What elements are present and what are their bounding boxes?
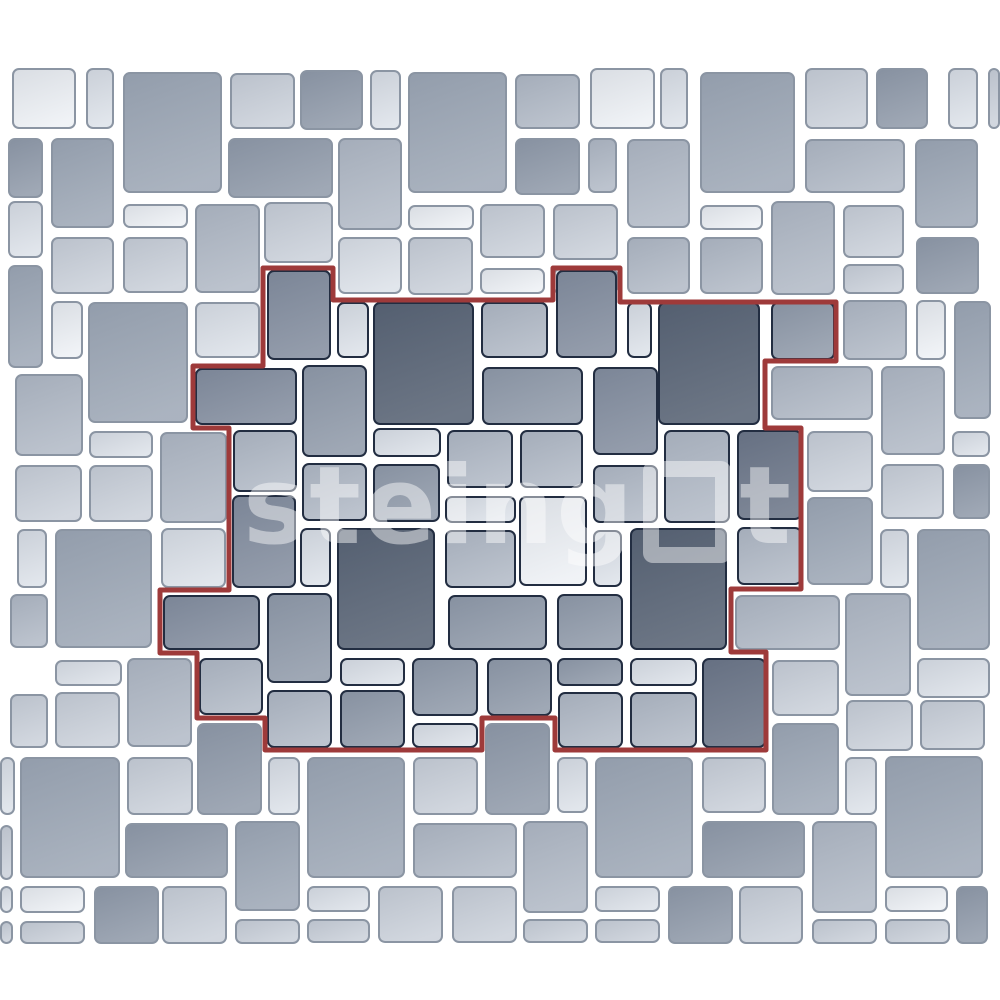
paving-tile [739,886,803,944]
paving-tile [338,138,402,230]
paving-tile [0,825,13,880]
paving-tile [51,301,83,359]
paving-tile [846,700,913,751]
paving-tile [956,886,988,944]
paving-tile [267,690,332,748]
paving-tile [162,886,227,944]
paving-tile [197,723,262,815]
paving-tile [700,237,763,294]
paving-tile [267,270,331,360]
paving-tile [556,270,617,358]
paving-tile [481,302,548,358]
paving-tile [123,204,188,228]
paving-tile [805,139,905,193]
paving-tile [807,431,873,492]
paving-tile [480,268,545,294]
paving-tile [885,919,950,944]
paving-tile [51,237,114,294]
paving-tile [195,368,297,425]
paving-tile [267,593,332,683]
paving-tile [881,464,944,519]
paving-tile [230,73,295,129]
paving-tile [805,68,868,129]
paving-tile [557,757,588,813]
paving-tile [15,374,83,456]
paving-tile [557,594,623,650]
paving-tile [482,367,583,425]
paving-tile [51,138,114,228]
paving-tile [988,68,1000,129]
paving-tile [15,465,82,522]
paving-tile [917,529,990,650]
paving-tile [88,302,188,423]
paving-tile [843,205,904,258]
paving-tile [10,594,48,648]
paving-tile [772,660,839,716]
paving-tile [127,757,193,815]
paving-tile [307,919,370,943]
paving-tile [916,300,946,360]
paving-tile [412,723,478,748]
paving-tile [595,886,660,912]
paving-tile [195,302,260,358]
paving-tile [702,821,805,878]
paving-tile [408,205,474,230]
paving-tile [771,366,873,420]
paving-tile [916,237,979,294]
paving-tile [700,72,795,193]
paving-tile [771,302,835,360]
paving-tile [954,301,991,419]
paving-tile [127,658,192,747]
paving-tile [702,658,766,748]
paving-tile [123,237,188,293]
paving-tile [408,237,473,295]
paving-tile [885,756,983,878]
paving-tile [876,68,928,129]
paving-tile [8,265,43,368]
paving-tile [89,431,153,458]
paving-tile [300,70,363,130]
paving-tile [94,886,159,944]
paving-tile [735,595,840,650]
paving-tile [812,919,877,944]
paving-tile [627,302,652,358]
paving-tile [55,529,152,648]
paving-tile [668,886,733,944]
paving-tile [702,757,766,813]
steingot-watermark: steingt [243,441,793,571]
paving-tile [952,431,990,457]
paving-tile [235,919,300,944]
paving-tile [448,595,547,650]
paving-tile [452,886,517,943]
paving-tile [8,201,43,258]
paving-tile [880,529,909,588]
paving-tile [20,886,85,913]
paving-tile [55,692,120,748]
paving-tile [160,432,227,523]
paving-tile [595,757,693,878]
paving-tile [523,821,588,913]
paving-tile [917,658,990,698]
paving-tile [0,886,13,913]
paving-tile [480,204,545,258]
paving-tile [340,690,405,748]
paving-tile [86,68,114,129]
paving-tile [845,593,911,696]
paving-tile [515,138,580,195]
paving-tile [558,692,623,748]
paving-tile [10,694,48,748]
paving-tile [630,658,697,686]
paving-tile [915,139,978,228]
paving-tile [557,658,623,686]
paving-tile [199,658,263,715]
paving-tile [630,692,697,748]
paving-tile [812,821,877,913]
paving-tile [373,302,474,425]
paving-tile [125,823,228,878]
paving-tile [595,919,660,943]
paving-pattern-diagram: steingt [0,0,1000,1000]
watermark-text-left: steing [243,444,635,569]
paving-tile [264,202,333,263]
paving-tile [843,264,904,294]
paving-tile [195,204,260,293]
paving-tile [658,302,760,425]
paving-tile [20,921,85,944]
paving-tile [123,72,222,193]
paving-tile [590,68,655,129]
paving-tile [307,757,405,878]
paving-tile [338,237,402,294]
paving-tile [523,919,588,943]
paving-tile [807,497,873,585]
paving-tile [337,302,369,358]
paving-tile [228,138,333,198]
paving-tile [771,201,835,295]
paving-tile [235,821,300,911]
paving-tile [268,757,300,815]
paving-tile [948,68,978,129]
paving-tile [307,886,370,912]
paving-tile [89,465,153,522]
paving-tile [17,529,47,588]
paving-tile [161,528,226,588]
paving-tile [843,300,907,360]
paving-tile [55,660,122,686]
paving-tile [487,658,552,716]
paving-tile [20,757,120,878]
watermark-square-o-glyph [643,461,731,563]
paving-tile [845,757,877,815]
paving-tile [627,139,690,228]
paving-tile [370,70,401,130]
paving-tile [485,723,550,815]
paving-tile [588,138,617,193]
paving-tile [953,464,990,519]
paving-tile [8,138,43,198]
paving-tile [412,658,478,716]
watermark-text-right: t [739,444,793,569]
paving-tile [413,757,478,815]
paving-tile [920,700,985,750]
paving-tile [163,595,260,650]
paving-tile [12,68,76,129]
paving-tile [515,74,580,129]
paving-tile [885,886,948,912]
paving-tile [0,757,15,815]
paving-tile [378,886,443,943]
paving-tile [881,366,945,455]
paving-tile [700,205,763,230]
paving-tile [772,723,839,815]
paving-tile [627,237,690,294]
paving-tile [0,921,13,944]
paving-tile [408,72,507,193]
paving-tile [553,204,618,260]
paving-tile [660,68,688,129]
paving-tile [413,823,517,878]
paving-tile [340,658,405,686]
